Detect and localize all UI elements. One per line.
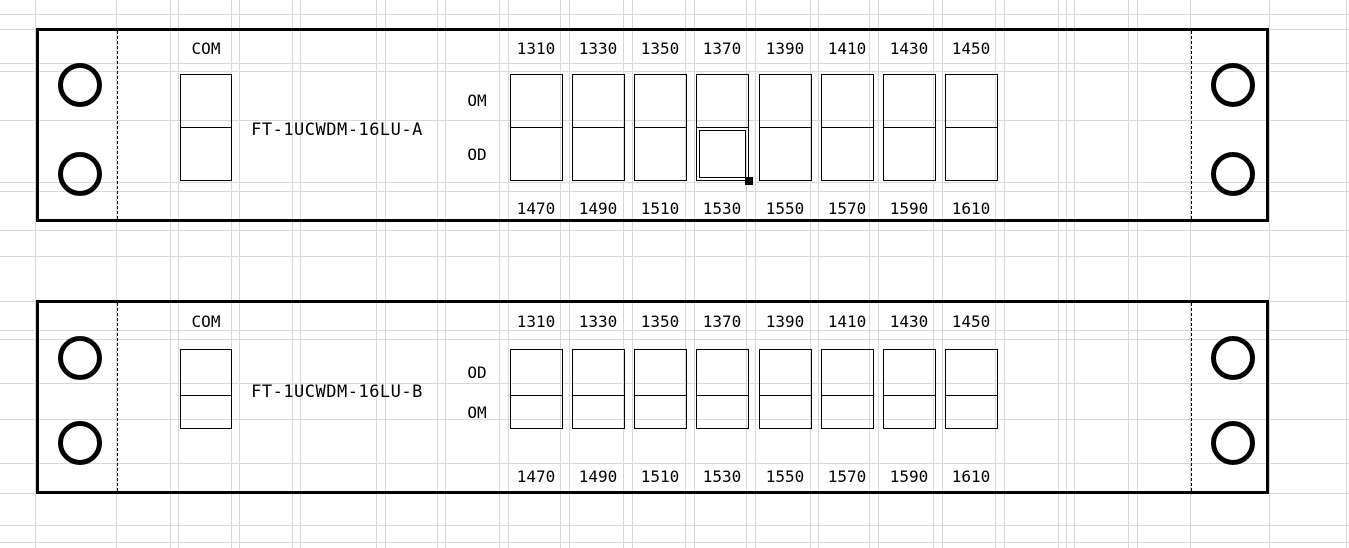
port-box [696,349,749,429]
wavelength-label-top: 1330 [568,38,628,60]
fold-dashed-line-right [1191,303,1192,491]
panel-faceplate-a: COMFT-1UCWDM-16LU-AOMOD13101470133014901… [36,28,1269,222]
mounting-hole-icon [1211,152,1255,196]
mounting-hole-icon [58,336,102,380]
fold-dashed-line-right [1191,31,1192,219]
wavelength-label-top: 1410 [817,38,877,60]
wavelength-label-bottom: 1510 [630,198,690,220]
wavelength-label-bottom: 1530 [692,198,752,220]
port-divider [573,395,624,396]
panel-title: FT-1UCWDM-16LU-A [237,119,437,141]
wavelength-label-bottom: 1530 [692,466,752,488]
wavelength-label-top: 1390 [755,38,815,60]
com-port-box [180,349,232,429]
wavelength-label-top: 1410 [817,311,877,333]
port-box [821,349,874,429]
port-divider [884,395,935,396]
com-port-divider [181,127,231,128]
wavelength-label-top: 1330 [568,311,628,333]
wavelength-label-bottom: 1570 [817,466,877,488]
port-divider [822,127,873,128]
port-box [634,74,687,181]
port-divider [511,127,562,128]
port-divider [760,127,811,128]
wavelength-label-top: 1370 [692,38,752,60]
port-box [634,349,687,429]
port-divider [573,127,624,128]
port-row-label-top: OM [447,90,507,112]
port-box [821,74,874,181]
wavelength-label-bottom: 1590 [879,466,939,488]
wavelength-label-top: 1370 [692,311,752,333]
selection-grip-handle[interactable] [745,177,753,185]
com-port-divider [181,395,231,396]
port-divider [946,395,997,396]
wavelength-label-top: 1350 [630,38,690,60]
wavelength-label-top: 1430 [879,311,939,333]
wavelength-label-top: 1390 [755,311,815,333]
port-divider [822,395,873,396]
port-box [759,349,812,429]
fold-dashed-line-left [117,31,118,219]
port-box [510,74,563,181]
com-label: COM [176,311,236,333]
wavelength-label-top: 1450 [941,311,1001,333]
wavelength-label-bottom: 1510 [630,466,690,488]
wavelength-label-top: 1450 [941,38,1001,60]
port-row-label-top: OD [447,362,507,384]
wavelength-label-bottom: 1590 [879,198,939,220]
mounting-hole-icon [58,63,102,107]
selection-inner-outline [699,130,746,178]
mounting-hole-icon [58,152,102,196]
wavelength-label-bottom: 1470 [506,198,566,220]
wavelength-label-top: 1310 [506,38,566,60]
wavelength-label-top: 1430 [879,38,939,60]
mounting-hole-icon [1211,421,1255,465]
wavelength-label-bottom: 1490 [568,198,628,220]
panel-title: FT-1UCWDM-16LU-B [237,381,437,403]
port-divider [946,127,997,128]
port-box [945,74,998,181]
wavelength-label-bottom: 1490 [568,466,628,488]
wavelength-label-bottom: 1610 [941,466,1001,488]
port-box [510,349,563,429]
wavelength-label-bottom: 1470 [506,466,566,488]
port-row-label-bottom: OD [447,144,507,166]
selected-port-cell[interactable] [696,127,749,181]
port-box [945,349,998,429]
port-divider [635,127,686,128]
com-label: COM [176,38,236,60]
port-divider [697,395,748,396]
wavelength-label-bottom: 1610 [941,198,1001,220]
mounting-hole-icon [1211,63,1255,107]
wavelength-label-bottom: 1550 [755,198,815,220]
port-box [572,74,625,181]
wavelength-label-bottom: 1570 [817,198,877,220]
drawing-canvas: COMFT-1UCWDM-16LU-AOMOD13101470133014901… [0,0,1349,548]
port-divider [760,395,811,396]
port-box [883,349,936,429]
port-divider [884,127,935,128]
com-port-box [180,74,232,181]
wavelength-label-top: 1310 [506,311,566,333]
mounting-hole-icon [58,421,102,465]
wavelength-label-top: 1350 [630,311,690,333]
fold-dashed-line-left [117,303,118,491]
port-box [883,74,936,181]
mounting-hole-icon [1211,336,1255,380]
wavelength-label-bottom: 1550 [755,466,815,488]
port-row-label-bottom: OM [447,402,507,424]
port-divider [635,395,686,396]
port-divider [511,395,562,396]
panel-faceplate-b: COMFT-1UCWDM-16LU-BODOM13101470133014901… [36,300,1269,494]
port-box [759,74,812,181]
port-box [572,349,625,429]
